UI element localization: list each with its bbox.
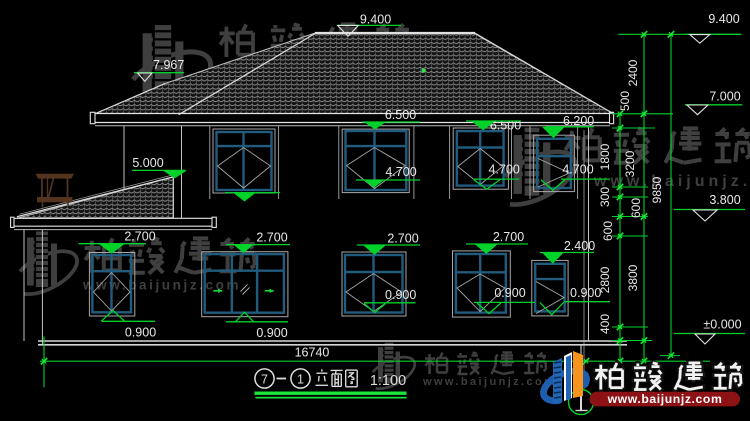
svg-text:16740: 16740 xyxy=(295,346,330,360)
svg-text:4.700: 4.700 xyxy=(385,165,416,179)
svg-text:0.900: 0.900 xyxy=(256,326,287,340)
svg-text:3.800: 3.800 xyxy=(709,193,740,207)
svg-text:2.400: 2.400 xyxy=(564,239,595,253)
svg-text:0.900: 0.900 xyxy=(125,326,156,340)
svg-text:3200: 3200 xyxy=(623,150,637,177)
svg-text:0.900: 0.900 xyxy=(494,286,525,300)
svg-text:500: 500 xyxy=(618,91,632,111)
svg-text:www.baijunjz.com: www.baijunjz.com xyxy=(607,392,723,406)
svg-text:www.baijunjz.com: www.baijunjz.com xyxy=(422,376,556,388)
svg-text:±0.000: ±0.000 xyxy=(703,318,741,332)
svg-text:300: 300 xyxy=(598,187,612,207)
svg-text:2.700: 2.700 xyxy=(124,230,155,244)
svg-text:4.700: 4.700 xyxy=(562,162,593,176)
svg-text:1: 1 xyxy=(297,372,304,386)
svg-text:1800: 1800 xyxy=(598,143,612,170)
svg-text:2400: 2400 xyxy=(626,59,640,86)
svg-text:400: 400 xyxy=(598,314,612,334)
svg-text:4.700: 4.700 xyxy=(489,162,520,176)
svg-text:0.900: 0.900 xyxy=(385,288,416,302)
svg-text:7.000: 7.000 xyxy=(709,90,740,104)
svg-text:9.400: 9.400 xyxy=(708,12,739,26)
svg-text:7: 7 xyxy=(261,372,268,386)
svg-text:2800: 2800 xyxy=(598,266,612,293)
svg-text:6.200: 6.200 xyxy=(563,114,594,128)
svg-text:0.900: 0.900 xyxy=(570,286,601,300)
svg-text:2.700: 2.700 xyxy=(493,230,524,244)
svg-text:2.700: 2.700 xyxy=(256,231,287,245)
svg-text:600: 600 xyxy=(601,221,615,241)
svg-text:7.967: 7.967 xyxy=(153,58,184,72)
svg-text:5.000: 5.000 xyxy=(132,156,163,170)
svg-text:3800: 3800 xyxy=(626,264,640,291)
svg-text:1:100: 1:100 xyxy=(370,373,406,389)
svg-text:9850: 9850 xyxy=(650,176,664,203)
svg-text:6.500: 6.500 xyxy=(385,108,416,122)
svg-text:2.700: 2.700 xyxy=(387,232,418,246)
svg-text:600: 600 xyxy=(629,198,643,218)
svg-text:9.400: 9.400 xyxy=(360,13,391,27)
